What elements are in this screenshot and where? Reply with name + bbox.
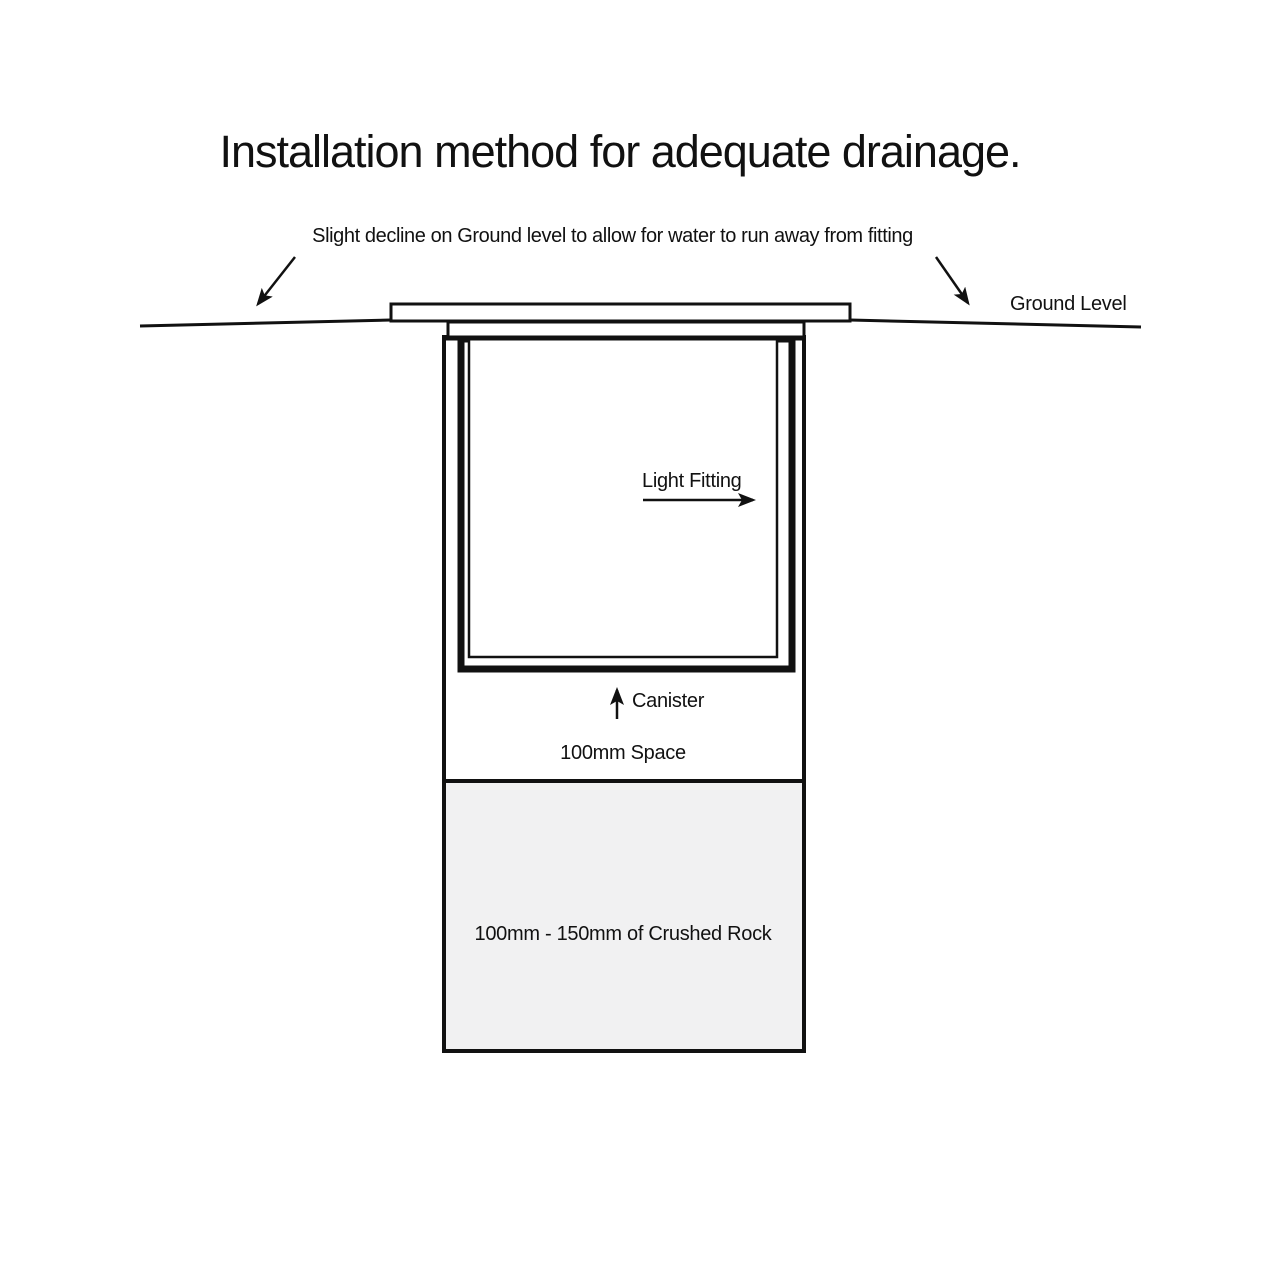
canister-label: Canister [632,690,704,713]
light-fitting-body [469,339,777,657]
diagram-drawing [0,0,1281,1281]
diagram-title: Installation method for adequate drainag… [90,126,1150,178]
space-label: 100mm Space [443,742,803,765]
crushed-rock-layer [444,781,804,1051]
cover-plate [391,304,850,321]
light-fitting-label: Light Fitting [642,470,742,493]
ground-line-right [850,320,1141,327]
decline-annotation: Slight decline on Ground level to allow … [240,225,985,248]
decline-arrow-left [258,257,295,304]
crushed-rock-label: 100mm - 150mm of Crushed Rock [443,923,803,946]
decline-arrow-right [936,257,968,303]
ground-line-left [140,320,391,326]
ground-level-label: Ground Level [1010,293,1126,316]
installation-diagram: Installation method for adequate drainag… [0,0,1281,1281]
